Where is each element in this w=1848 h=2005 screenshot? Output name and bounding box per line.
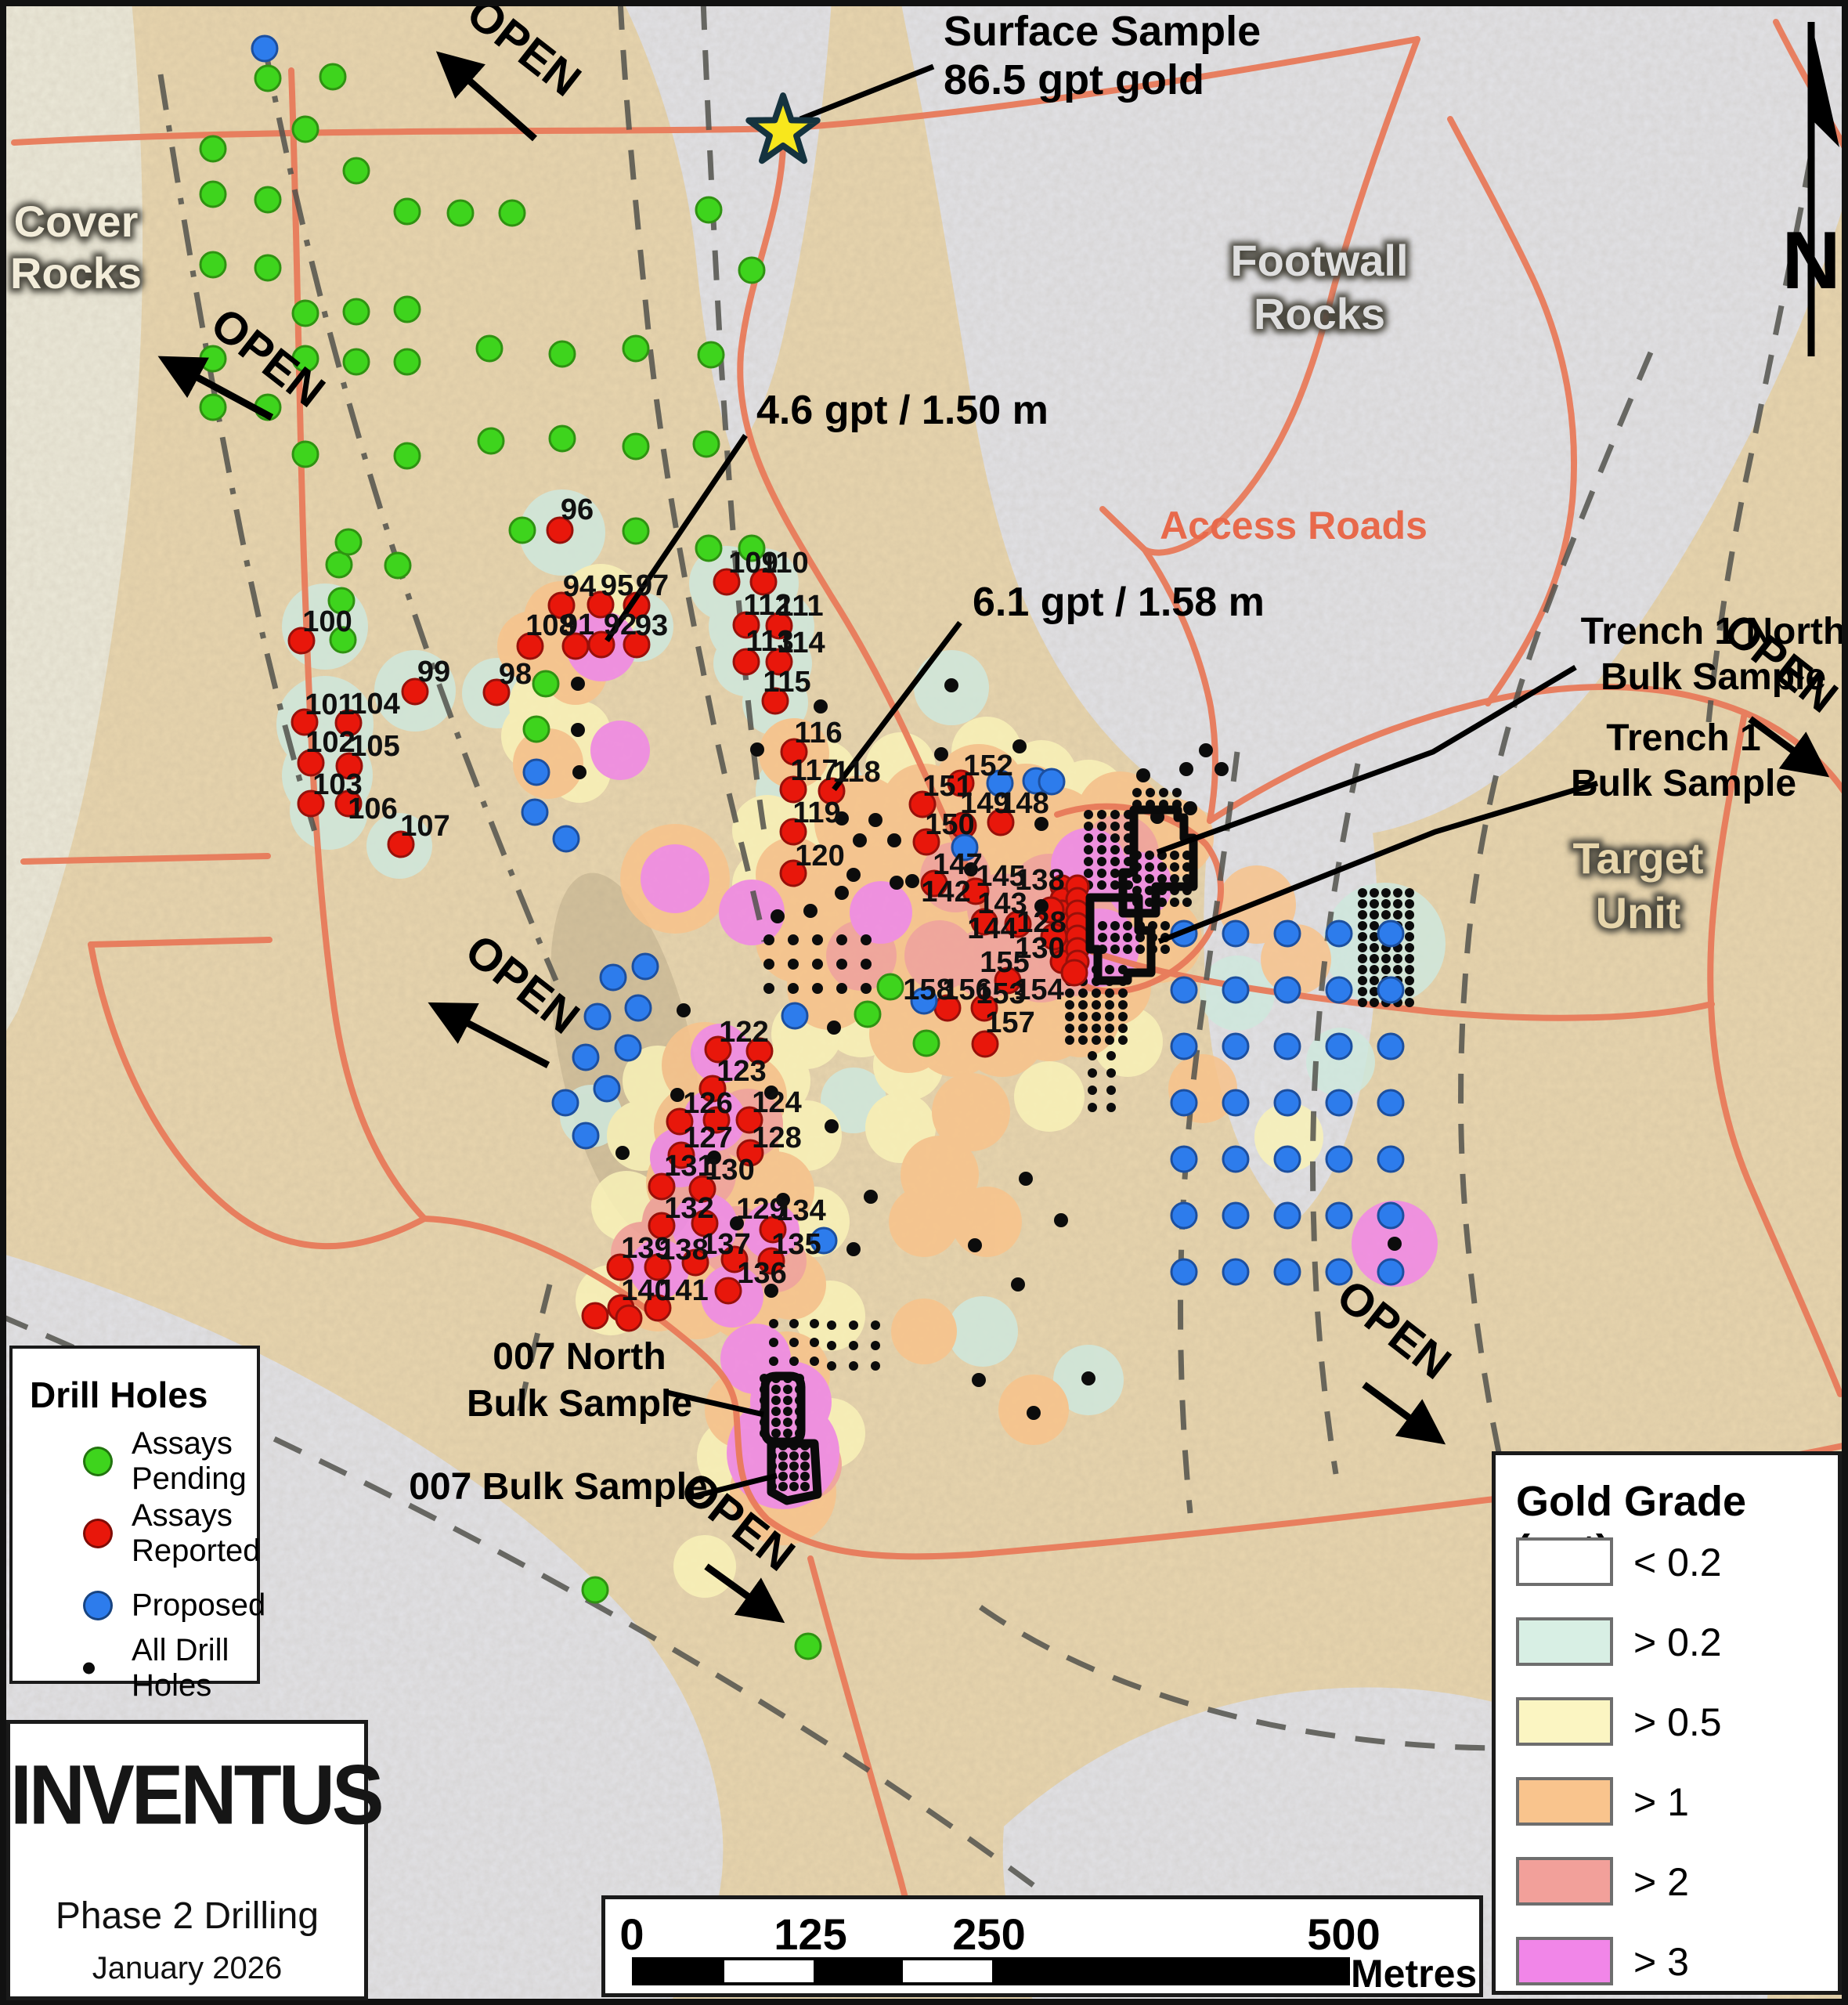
drill-hole-dot [1078,1012,1088,1021]
assays-pending-dot-icon [83,1447,113,1476]
drill-hole-dot [878,974,903,999]
drill-hole-dot [1078,1035,1088,1045]
drill-hole-dot [1027,1406,1041,1420]
grade-swatch-lt02 [1516,1537,1613,1586]
drill-hole-dot [554,826,579,851]
grade-swatch-gt1 [1516,1777,1613,1826]
drill-hole-dot [750,742,764,757]
drill-hole-dot [1110,833,1120,843]
gold-grade-item: > 3 [1496,1937,1838,1987]
drill-hole-dot [1110,810,1120,819]
drill-hole-dot [1118,988,1128,998]
drill-hole-dot [1405,976,1414,985]
drill-hole-dot [1223,977,1248,1002]
drill-hole-dot [887,833,901,847]
drill-hole-dot [615,1146,630,1160]
gold-grade-item: > 0.2 [1496,1617,1838,1667]
drill-hole-dot [849,1341,858,1350]
drill-hole-dot [1393,899,1402,909]
drill-hole-dot [763,983,774,994]
drill-hole-dot [1223,1203,1248,1228]
hole-number-label: 101 [305,688,354,721]
hole-number-label: 118 [832,756,880,789]
drill-hole-dot [200,252,226,277]
drill-holes-legend-title: Drill Holes [30,1374,208,1416]
drill-hole-dot [1358,932,1367,941]
drill-hole-dot [778,1472,788,1481]
drill-hole-dot [778,1451,788,1461]
hole-number-label: 119 [792,797,840,829]
drill-hole-dot [800,1472,810,1481]
drill-hole-dot [510,518,535,543]
drill-hole-dot [783,1418,792,1427]
hole-number-label: 92 [604,609,637,641]
drill-hole-dot [573,1123,598,1148]
hole-number-label: 114 [777,627,825,659]
drill-hole-dot [1123,921,1132,930]
hole-number-label: 157 [985,1006,1034,1039]
drill-hole-dot [1110,845,1120,854]
drill-hole-dot [1405,943,1414,952]
drill-hole-dot [1381,888,1391,898]
hole-number-label: 137 [701,1228,750,1261]
map-stage: 9192939495969798991001011021031041051061… [0,0,1848,2005]
drill-hole-dot [763,934,774,945]
drill-hole-dot [1171,1034,1197,1059]
drill-hole-dot [771,1407,781,1416]
hole-number-label: 105 [350,730,399,763]
drill-hole-dot [861,959,872,970]
drill-hole-dot [1097,833,1106,843]
drill-hole-dot [812,983,823,994]
drill-hole-dot [739,258,764,283]
drill-hole-dot [1065,1000,1074,1010]
drill-hole-dot [1098,921,1107,930]
scale-segment [903,1960,992,1982]
drill-hole-dot [585,1004,610,1029]
drill-hole-dot [1405,921,1414,930]
annotation-text: 007 Bulk Sample [409,1466,708,1508]
hole-number-label: 144 [967,912,1016,945]
drill-hole-dot [871,1361,880,1371]
grade-halo [850,881,912,944]
drill-hole-dot [1170,898,1179,907]
drill-hole-dot [1170,851,1179,860]
drill-hole-dot [788,983,799,994]
drill-hole-dot [812,959,823,970]
grade-halo [513,728,583,799]
drill-hole-dot [1223,1090,1248,1115]
legend-item-label: Proposed [132,1588,265,1624]
annotation-text: 007 North [493,1336,666,1378]
drill-hole-dot [1275,977,1300,1002]
title-block: INVENTUS Phase 2 Drilling January 2026 [6,1720,368,2000]
hole-number-label: 97 [636,569,669,602]
grade-halo [951,1187,1022,1257]
region-label: Access Roads [1160,504,1428,547]
hole-number-label: 147 [933,848,982,881]
drill-hole-dot [827,1361,836,1371]
drill-hole-dot [522,800,547,825]
scale-bar: 0 125 250 500 Metres [601,1895,1483,1997]
drill-hole-dot [827,1021,841,1035]
drill-hole-dot [1118,1035,1128,1045]
drill-hole-dot [1019,1172,1033,1186]
drill-hole-dot [293,117,318,142]
hole-number-label: 120 [795,840,844,872]
hole-number-label: 98 [499,658,532,691]
hole-number-label: 94 [563,570,596,603]
drill-hole-dot [1078,1024,1088,1033]
drill-hole-dot [1084,869,1093,878]
drill-hole-dot [789,1472,799,1481]
drill-hole-dot [1370,976,1379,985]
drill-hole-dot [1097,822,1106,831]
drill-hole-dot [594,1076,619,1101]
drill-hole-dot [573,1045,598,1070]
drill-hole-dot [1123,933,1132,942]
gold-grade-item: > 1 [1496,1777,1838,1827]
drill-hole-dot [836,983,847,994]
hole-number-label: 136 [737,1257,786,1290]
drill-hole-dot [571,677,585,691]
drill-hole-dot [1110,921,1120,930]
drill-hole-dot [1105,965,1114,974]
drill-hole-dot [827,1341,836,1350]
drill-hole-dot [1145,851,1154,860]
drill-hole-dot [1199,743,1213,757]
drill-hole-dot [1179,762,1193,776]
drill-hole-dot [1405,954,1414,963]
drill-hole-dot [1215,762,1229,776]
drill-hole-dot [944,678,958,692]
drill-hole-dot [846,1242,861,1256]
drill-hole-dot [810,1338,819,1347]
drill-hole-dot [1171,977,1197,1002]
drill-hole-dot [825,1119,839,1133]
drill-hole-dot [1110,880,1120,890]
hole-number-label: 139 [621,1232,670,1265]
drill-hole-dot [827,1320,836,1330]
drill-hole-dot [1062,960,1087,985]
drill-hole-dot [1132,788,1142,797]
drill-hole-dot [344,299,369,324]
grade-halo [889,1187,959,1257]
drill-hole-dot [1358,965,1367,974]
drill-hole-dot [1223,921,1248,946]
drill-hole-dot [200,182,226,207]
drill-hole-dot [1110,822,1120,831]
drill-hole-dot [771,1396,781,1405]
drill-hole-dot [1358,910,1367,919]
grade-halo [891,1299,957,1364]
drill-hole-dot [968,1238,982,1252]
drill-hole-dot [849,1361,858,1371]
drill-hole-dot [1159,788,1168,797]
region-label: Unit [1596,888,1681,937]
drill-hole-dot [550,426,575,451]
drill-hole-dot [836,959,847,970]
drill-hole-dot [1136,768,1150,782]
drill-hole-dot [200,136,226,161]
drill-hole-dot [1088,1103,1097,1112]
legend-item-all-drill-holes: All Drill Holes [13,1649,257,1688]
drill-hole-dot [696,197,721,222]
drill-hole-dot [1171,1259,1197,1284]
drill-hole-dot [395,349,420,374]
legend-item-assays-pending: Assays Pending [13,1442,257,1481]
drill-hole-dot [800,1482,810,1491]
legend-item-proposed: Proposed [13,1586,257,1625]
drill-hole-dot [800,1451,810,1461]
drill-hole-dot [626,995,651,1021]
drill-hole-dot [1381,965,1391,974]
drill-hole-dot [1160,921,1170,930]
drill-hole-dot [1405,899,1414,909]
drill-hole-dot [1378,1034,1403,1059]
annotation-text: 4.6 gpt / 1.50 m [756,388,1049,433]
hole-number-label: 126 [683,1087,732,1120]
drill-hole-dot [1223,1147,1248,1172]
gold-grade-item: < 0.2 [1496,1537,1838,1588]
drill-hole-dot [1275,1203,1300,1228]
drill-hole-dot [788,934,799,945]
drill-hole-dot [1370,965,1379,974]
drill-hole-dot [698,342,724,367]
drill-hole-dot [1110,869,1120,878]
hole-number-label: 128 [752,1122,801,1154]
drill-hole-dot [623,434,648,459]
drill-hole-dot [583,1577,608,1602]
annotation-text: 86.5 gpt gold [944,56,1204,103]
drill-hole-dot [500,200,525,226]
drill-hole-dot [769,1357,778,1366]
drill-hole-dot [255,66,280,91]
drill-hole-dot [677,1003,691,1017]
hole-number-label: 152 [963,750,1012,782]
map-date: January 2026 [10,1951,364,1986]
drill-hole-dot [583,1303,608,1328]
drill-hole-dot [1358,976,1367,985]
drill-hole-dot [1183,801,1197,815]
legend-item-label: Assays Pending [132,1426,257,1497]
scale-bar-segments [632,1957,1350,1985]
drill-hole-dot [1378,1259,1403,1284]
drill-hole-dot [1405,932,1414,941]
drill-hole-dot [1405,965,1414,974]
drill-hole-dot [1110,945,1120,954]
drill-hole-dot [1370,954,1379,963]
drill-hole-dot [1098,933,1107,942]
grade-label: > 2 [1633,1859,1689,1905]
drill-hole-dot [1370,921,1379,930]
annotation-text: Trench 1 [1606,717,1760,759]
drill-hole-dot [1135,945,1145,954]
drill-hole-dot [696,536,721,561]
hole-number-label: 123 [716,1055,766,1088]
hole-number-label: 131 [664,1150,713,1183]
drill-hole-dot [336,529,361,555]
drill-hole-dot [771,1418,781,1427]
drill-hole-dot [1097,880,1106,890]
hole-number-label: 135 [771,1228,821,1261]
drill-hole-dot [855,1002,880,1027]
drill-hole-dot [344,349,369,374]
hole-number-label: 116 [794,717,842,750]
drill-hole-dot [524,760,549,785]
drill-hole-dot [320,64,345,89]
drill-hole-dot [1370,899,1379,909]
drill-hole-dot [293,301,318,326]
hole-number-label: 141 [659,1274,708,1307]
hole-number-label: 158 [903,974,952,1006]
drill-hole-dot [1378,1147,1403,1172]
grade-label: > 0.5 [1633,1700,1722,1745]
drill-hole-dot [789,1482,799,1491]
grade-swatch-gt2 [1516,1857,1613,1906]
hole-number-label: 100 [302,605,352,638]
grade-halo [641,844,709,913]
drill-hole-dot [344,158,369,183]
drill-hole-dot [1118,1000,1128,1010]
scale-tick: 0 [619,1909,644,1960]
annotation-text: Bulk Sample [1571,763,1796,804]
drill-hole-dot [868,813,882,827]
scale-segment [992,1960,1347,1982]
legend-item-label: Assays Reported [132,1498,261,1569]
drill-hole-dot [782,1003,807,1028]
drill-hole-dot [1097,810,1106,819]
drill-hole-dot [914,1031,939,1056]
drill-hole-dot [800,1461,810,1471]
region-label: Rocks [1254,289,1385,338]
drill-hole-dot [1405,910,1414,919]
annotation-text: Surface Sample [944,8,1261,55]
drill-hole-dot [1326,1090,1352,1115]
drill-hole-dot [1326,1034,1352,1059]
drill-hole-dot [1393,965,1402,974]
drill-hole-dot [788,959,799,970]
region-label: Rocks [10,248,142,298]
drill-hole-dot [1105,1035,1114,1045]
drill-hole-dot [1326,1147,1352,1172]
drill-hole-dot [846,868,861,882]
hole-number-label: 132 [664,1192,713,1225]
drill-hole-dot [972,1373,986,1387]
region-label: Footwall [1230,236,1408,285]
drill-hole-dot [1105,1012,1114,1021]
scale-segment [635,1960,724,1982]
drill-hole-dot [1106,1068,1116,1078]
drill-hole-dot [771,1429,781,1438]
grade-label: > 3 [1633,1939,1689,1985]
drill-hole-dot [763,959,774,970]
drill-hole-dot [1078,988,1088,998]
hole-number-label: 112 [743,589,791,622]
drill-hole-dot [849,1320,858,1330]
drill-hole-dot [1326,1259,1352,1284]
drill-hole-dot [1171,1147,1197,1172]
drill-hole-dot [783,1385,792,1394]
drill-hole-dot [1118,1024,1128,1033]
drill-hole-dot [1118,1012,1128,1021]
proposed-dot-icon [83,1591,113,1620]
drill-hole-dot [1078,1000,1088,1010]
legend-item-assays-reported: Assays Reported [13,1514,257,1553]
drill-hole-dot [1106,1051,1116,1060]
drill-hole-dot [1370,910,1379,919]
all-drill-holes-dot-icon [83,1663,95,1674]
drill-hole-dot [871,1320,880,1330]
scale-tick: 125 [774,1909,846,1960]
grade-label: > 1 [1633,1779,1689,1825]
drill-hole-dot [623,336,648,361]
drill-hole-dot [623,518,648,544]
drill-hole-dot [1123,945,1132,954]
legend-item-label: All Drill Holes [132,1633,257,1703]
drill-hole-dot [1084,833,1093,843]
drill-hole-dot [395,297,420,322]
drill-hole-dot [1065,1012,1074,1021]
drill-hole-dot [1405,987,1414,996]
annotation-text: Trench 1 North [1581,611,1846,652]
drill-hole-dot [769,1319,778,1328]
drill-hole-dot [783,1396,792,1405]
drill-hole-dot [1110,857,1120,866]
drill-hole-dot [1084,822,1093,831]
drill-hole-dot [1145,862,1154,872]
drill-hole-dot [1405,998,1414,1007]
hole-number-label: 107 [400,810,449,843]
drill-hole-dot [1358,921,1367,930]
drill-hole-dot [810,1319,819,1328]
drill-hole-dot [1106,1103,1116,1112]
drill-hole-dot [789,1461,799,1471]
drill-hole-dot [783,1429,792,1438]
drill-hole-dot [1393,954,1402,963]
drill-hole-dot [1065,988,1074,998]
drill-hole-dot [572,765,587,779]
region-label: Target [1573,833,1704,883]
drill-hole-dot [1110,933,1120,942]
drill-hole-dot [255,255,280,280]
drill-hole-dot [478,428,504,453]
hole-number-label: 110 [760,547,808,580]
drill-hole-dot [1223,1259,1248,1284]
drill-hole-dot [1171,1090,1197,1115]
drill-hole-dot [395,199,420,224]
drill-hole-dot [1370,888,1379,898]
hole-number-label: 130 [1015,932,1064,965]
drill-hole-dot [890,876,904,890]
grade-halo [590,721,650,780]
drill-hole-dot [1171,1203,1197,1228]
hole-number-label: 108 [525,609,575,642]
drill-hole-dot [533,671,558,696]
grade-halo [1014,1061,1085,1132]
drill-hole-dot [1182,898,1192,907]
drill-hole-dot [1275,1259,1300,1284]
grade-halo [947,1296,1018,1367]
gold-grade-legend: Gold Grade (gpt) < 0.2 > 0.2 > 0.5 > 1 >… [1492,1451,1842,1995]
drill-hole-dot [1170,862,1179,872]
drill-hole-dot [550,341,575,367]
drill-hole-dot [1088,1051,1097,1060]
drill-hole-dot [861,983,872,994]
drill-hole-dot [1105,1000,1114,1010]
drill-hole-dot [871,1341,880,1350]
drill-hole-dot [934,747,948,761]
